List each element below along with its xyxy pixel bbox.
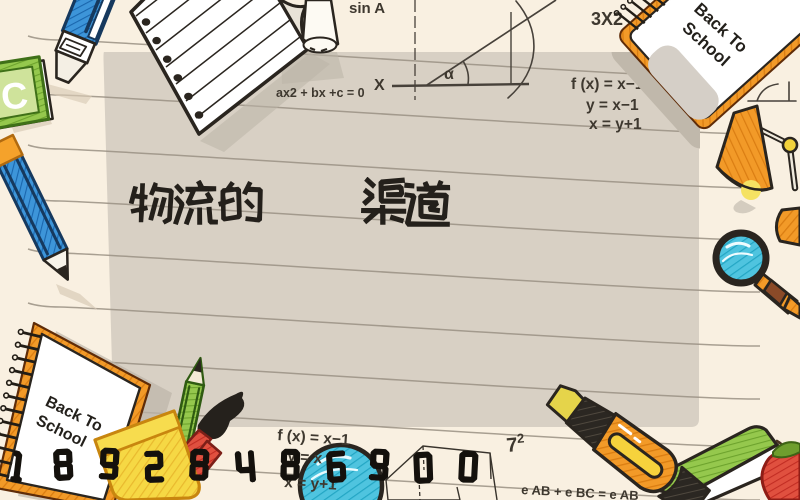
svg-text:sin A: sin A	[349, 0, 385, 17]
svg-text:X: X	[374, 77, 385, 94]
svg-text:y = x−1: y = x−1	[586, 97, 639, 114]
svg-text:C: C	[0, 74, 30, 118]
svg-text:x = y+1: x = y+1	[589, 116, 642, 133]
svg-text:α: α	[444, 66, 454, 83]
svg-text:ax2 + bx +c = 0: ax2 + bx +c = 0	[276, 86, 365, 100]
